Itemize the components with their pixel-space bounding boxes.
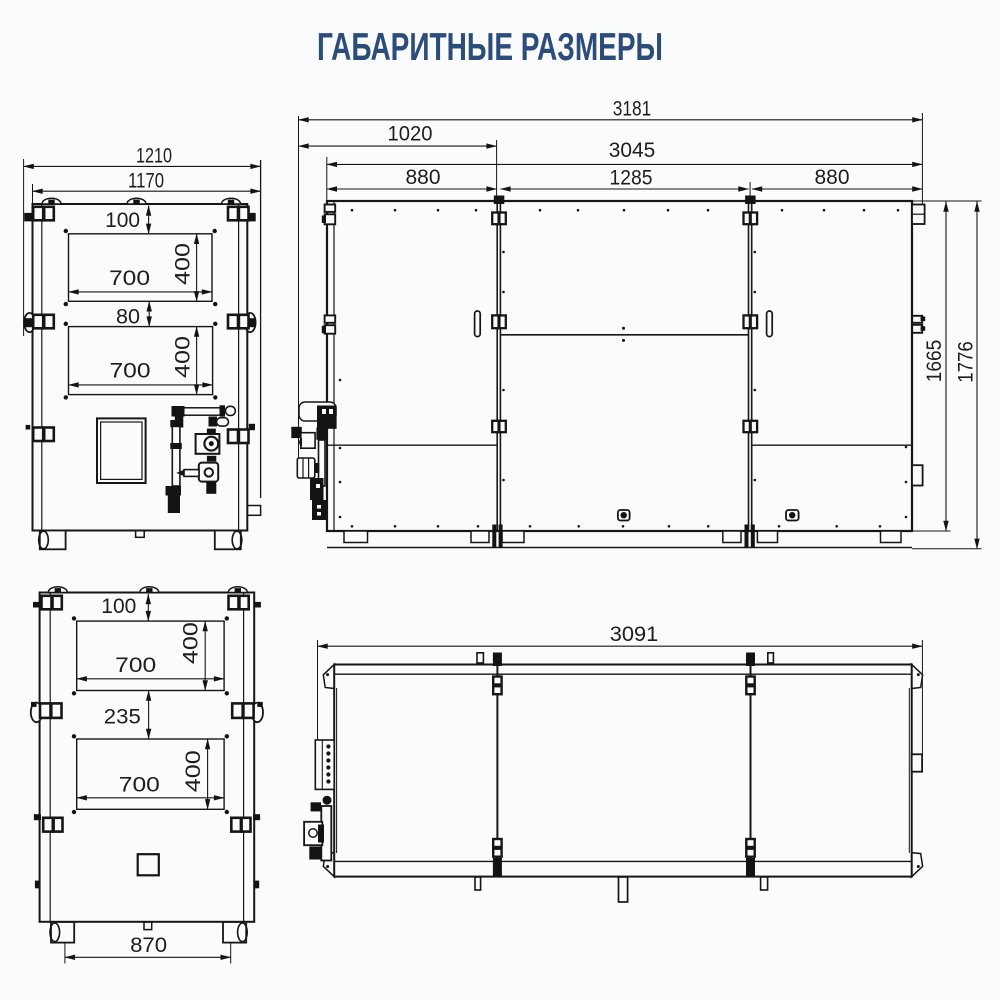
svg-text:3045: 3045 xyxy=(609,138,656,162)
svg-text:1776: 1776 xyxy=(953,341,977,383)
svg-text:1020: 1020 xyxy=(388,122,433,146)
svg-text:400: 400 xyxy=(179,622,203,664)
svg-text:700: 700 xyxy=(115,653,156,677)
svg-text:700: 700 xyxy=(109,266,150,290)
svg-text:ГАБАРИТНЫЕ РАЗМЕРЫ: ГАБАРИТНЫЕ РАЗМЕРЫ xyxy=(317,26,663,69)
svg-text:700: 700 xyxy=(110,358,151,382)
svg-text:1285: 1285 xyxy=(610,165,653,189)
svg-text:880: 880 xyxy=(406,165,441,189)
svg-text:700: 700 xyxy=(119,773,160,797)
svg-text:100: 100 xyxy=(105,208,140,232)
svg-text:100: 100 xyxy=(101,594,136,618)
svg-text:400: 400 xyxy=(181,750,205,792)
svg-text:1170: 1170 xyxy=(128,169,164,193)
svg-text:400: 400 xyxy=(171,336,195,378)
svg-text:3091: 3091 xyxy=(610,622,659,646)
svg-text:880: 880 xyxy=(815,165,850,189)
svg-text:870: 870 xyxy=(130,933,167,957)
svg-text:3181: 3181 xyxy=(613,97,652,121)
svg-text:235: 235 xyxy=(104,704,141,728)
svg-text:80: 80 xyxy=(116,304,140,328)
svg-text:400: 400 xyxy=(171,243,195,285)
svg-text:1665: 1665 xyxy=(922,340,946,383)
svg-text:1210: 1210 xyxy=(136,144,172,168)
